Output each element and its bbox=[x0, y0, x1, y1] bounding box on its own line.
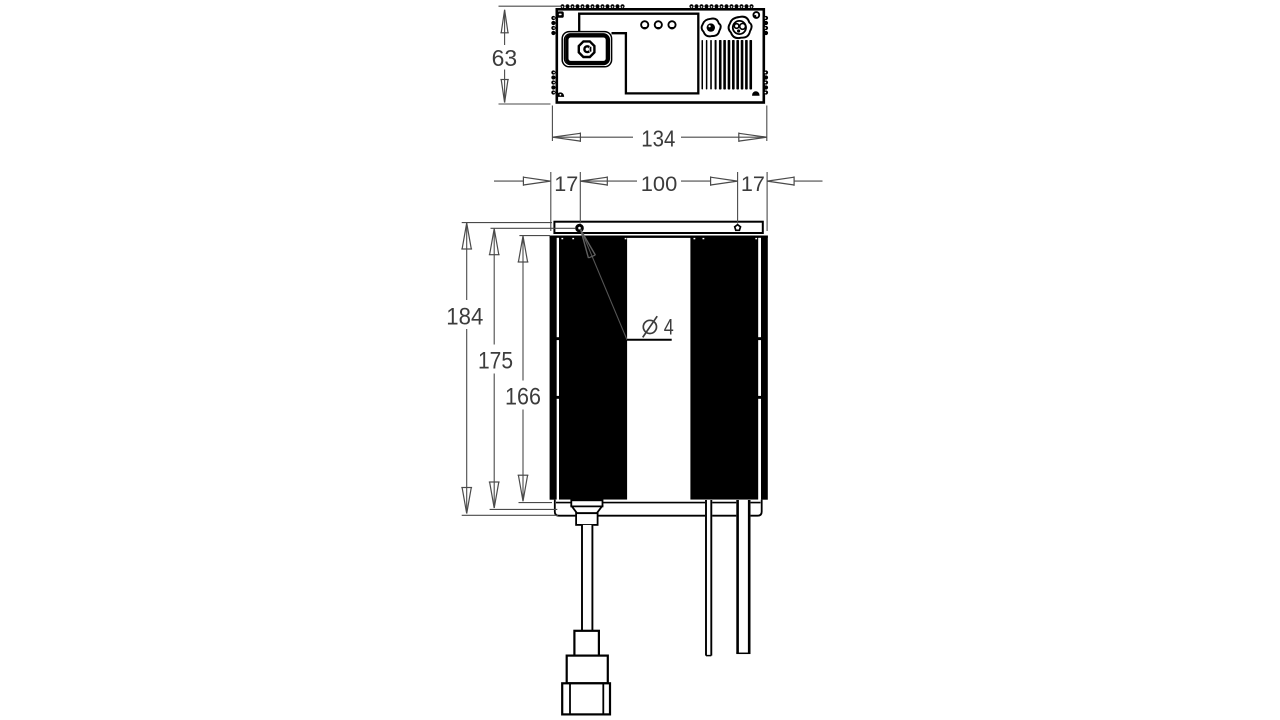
svg-text:166: 166 bbox=[505, 384, 541, 411]
svg-text:175: 175 bbox=[478, 348, 513, 375]
svg-text:17: 17 bbox=[741, 172, 765, 196]
svg-text:134: 134 bbox=[641, 126, 675, 152]
svg-text:100: 100 bbox=[641, 172, 678, 196]
svg-text:63: 63 bbox=[492, 45, 518, 71]
svg-text:184: 184 bbox=[446, 303, 483, 330]
svg-text:4: 4 bbox=[664, 314, 674, 339]
svg-text:17: 17 bbox=[554, 172, 578, 196]
